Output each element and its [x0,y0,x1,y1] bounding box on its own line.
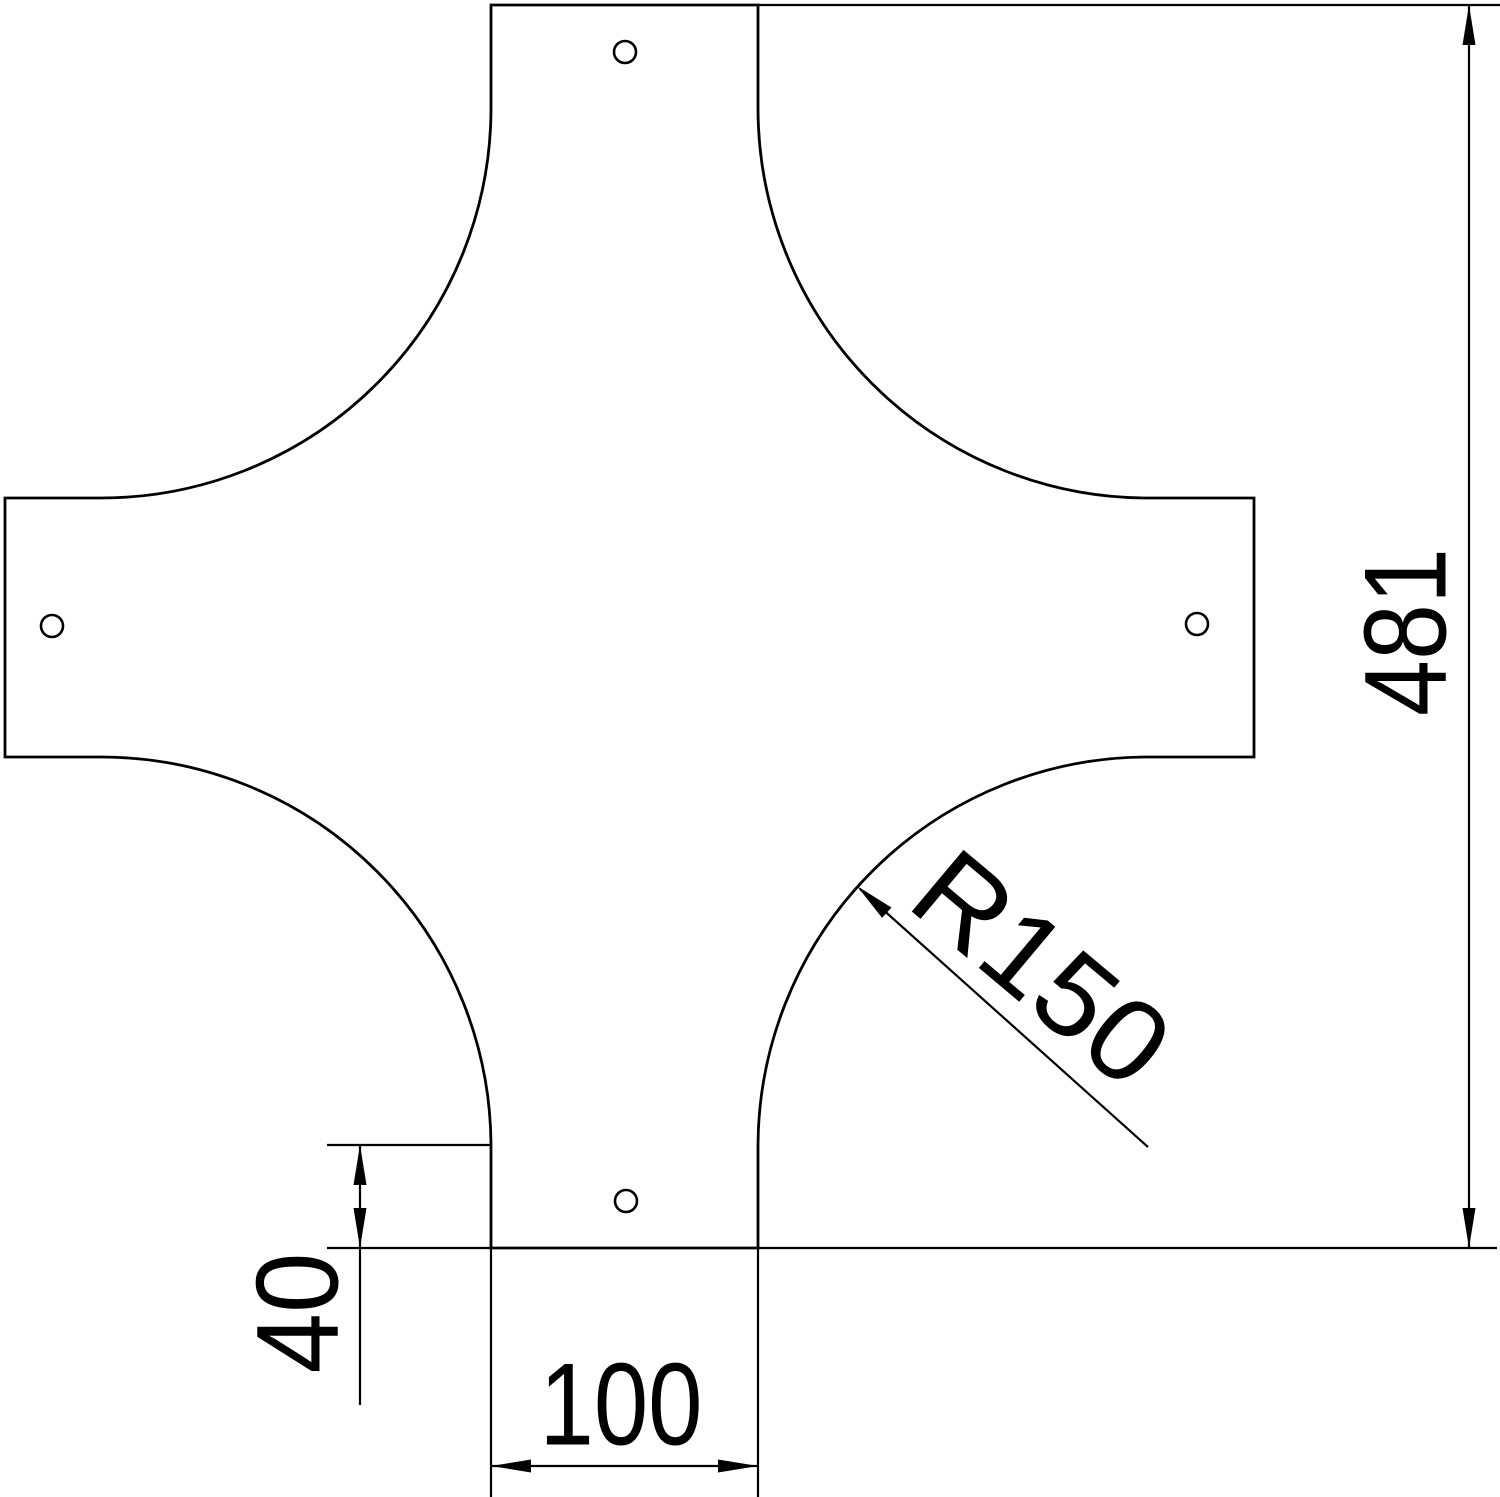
arrowhead-up-icon [354,1145,367,1185]
cross-cover-drawing: 481 40 100 R150 [0,0,1500,1497]
mounting-hole-right [1186,613,1208,635]
mounting-hole-top [614,41,636,63]
dimension-label-corner-radius: R150 [888,824,1196,1112]
arrowhead-radius-icon [857,886,892,918]
dimension-label-arm-width: 100 [540,1339,703,1470]
dimension-label-edge-offset: 40 [232,1253,363,1374]
dimension-arm-width: 100 [491,1248,758,1497]
dimension-edge-offset: 40 [232,1145,492,1405]
arrowhead-left-icon [491,1460,531,1473]
arrowhead-down-icon [354,1208,367,1248]
arrowhead-down-icon [1463,1208,1476,1248]
arrowhead-up-icon [1463,5,1476,45]
dimension-corner-radius: R150 [857,824,1196,1147]
dimension-label-overall-length: 481 [1340,548,1471,716]
arrowhead-right-icon [718,1460,758,1473]
mounting-hole-left [41,615,63,637]
mounting-hole-bottom [615,1190,637,1212]
technical-drawing-canvas: 481 40 100 R150 [0,0,1500,1497]
